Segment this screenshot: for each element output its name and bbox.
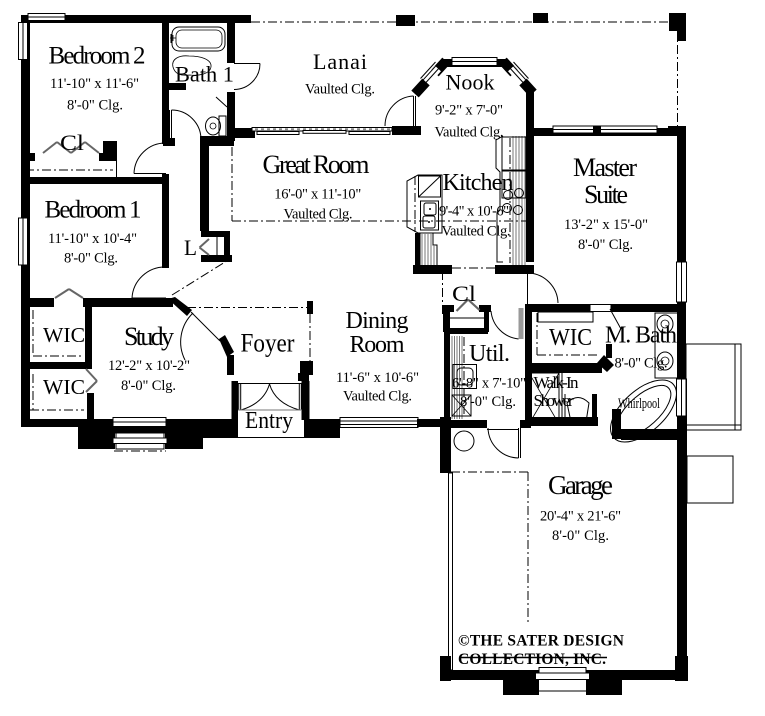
svg-text:WIC: WIC xyxy=(549,325,592,351)
svg-text:Foyer: Foyer xyxy=(241,329,295,358)
svg-text:Great Room: Great Room xyxy=(263,150,370,179)
svg-text:Nook: Nook xyxy=(446,70,495,95)
svg-text:8'-0" Clg.: 8'-0" Clg. xyxy=(64,251,118,267)
svg-text:L: L xyxy=(184,235,197,260)
svg-text:Garage: Garage xyxy=(548,470,613,500)
svg-text:COLLECTION, INC.: COLLECTION, INC. xyxy=(458,651,606,668)
svg-text:©THE SATER DESIGN: ©THE SATER DESIGN xyxy=(458,632,624,649)
svg-text:Vaulted Clg.: Vaulted Clg. xyxy=(435,125,504,141)
svg-text:8'-0" Clg.: 8'-0" Clg. xyxy=(67,98,123,114)
svg-text:Bedroom 2: Bedroom 2 xyxy=(49,43,146,70)
svg-text:12'-2" x 10'-2": 12'-2" x 10'-2" xyxy=(108,358,190,374)
svg-text:WIC: WIC xyxy=(43,375,85,399)
svg-text:Whirlpool: Whirlpool xyxy=(618,396,660,412)
svg-text:Master: Master xyxy=(573,153,637,182)
svg-text:Util.: Util. xyxy=(469,341,510,367)
svg-text:8'-0" Clg.: 8'-0" Clg. xyxy=(552,528,609,544)
svg-text:Vaulted Clg.: Vaulted Clg. xyxy=(442,224,511,240)
svg-text:9'-4" x 10'-6": 9'-4" x 10'-6" xyxy=(439,204,509,220)
svg-text:Shower: Shower xyxy=(534,391,574,410)
svg-text:11'-10" x 10'-4": 11'-10" x 10'-4" xyxy=(48,231,137,247)
svg-text:Study: Study xyxy=(124,322,174,351)
svg-text:Cl: Cl xyxy=(452,281,476,306)
svg-text:Room: Room xyxy=(350,332,405,358)
svg-text:Vaulted Clg.: Vaulted Clg. xyxy=(284,207,353,223)
svg-text:Suite: Suite xyxy=(584,180,628,209)
svg-text:Cl: Cl xyxy=(60,130,84,155)
svg-text:Vaulted Clg.: Vaulted Clg. xyxy=(343,389,412,405)
svg-text:11'-10" x 11'-6": 11'-10" x 11'-6" xyxy=(50,76,139,92)
svg-text:Vaulted Clg.: Vaulted Clg. xyxy=(305,82,375,98)
svg-text:13'-2" x 15'-0": 13'-2" x 15'-0" xyxy=(564,217,648,233)
svg-text:Bedroom 1: Bedroom 1 xyxy=(45,197,142,224)
svg-text:8'-0" Clg.: 8'-0" Clg. xyxy=(578,237,633,253)
svg-text:Walk-In: Walk-In xyxy=(534,373,580,392)
svg-text:8'-0" Clg.: 8'-0" Clg. xyxy=(460,394,516,410)
svg-text:Lanai: Lanai xyxy=(313,49,367,74)
svg-text:WIC: WIC xyxy=(43,323,85,347)
svg-text:8'-0" Clg.: 8'-0" Clg. xyxy=(615,356,668,372)
svg-text:Entry: Entry xyxy=(245,408,293,434)
svg-text:Bath 1: Bath 1 xyxy=(175,62,234,87)
svg-text:Kitchen: Kitchen xyxy=(443,170,514,196)
svg-text:Dining: Dining xyxy=(346,308,409,334)
svg-text:20'-4" x 21'-6": 20'-4" x 21'-6" xyxy=(540,509,621,525)
svg-text:11'-6" x 10'-6": 11'-6" x 10'-6" xyxy=(336,370,419,386)
svg-text:M. Bath: M. Bath xyxy=(605,323,677,349)
svg-text:9'-2" x 7'-0": 9'-2" x 7'-0" xyxy=(435,103,503,119)
svg-text:6'-8" x 7'-10": 6'-8" x 7'-10" xyxy=(452,376,526,392)
svg-text:16'-0" x 11'-10": 16'-0" x 11'-10" xyxy=(274,187,361,203)
svg-text:8'-0" Clg.: 8'-0" Clg. xyxy=(121,378,176,394)
